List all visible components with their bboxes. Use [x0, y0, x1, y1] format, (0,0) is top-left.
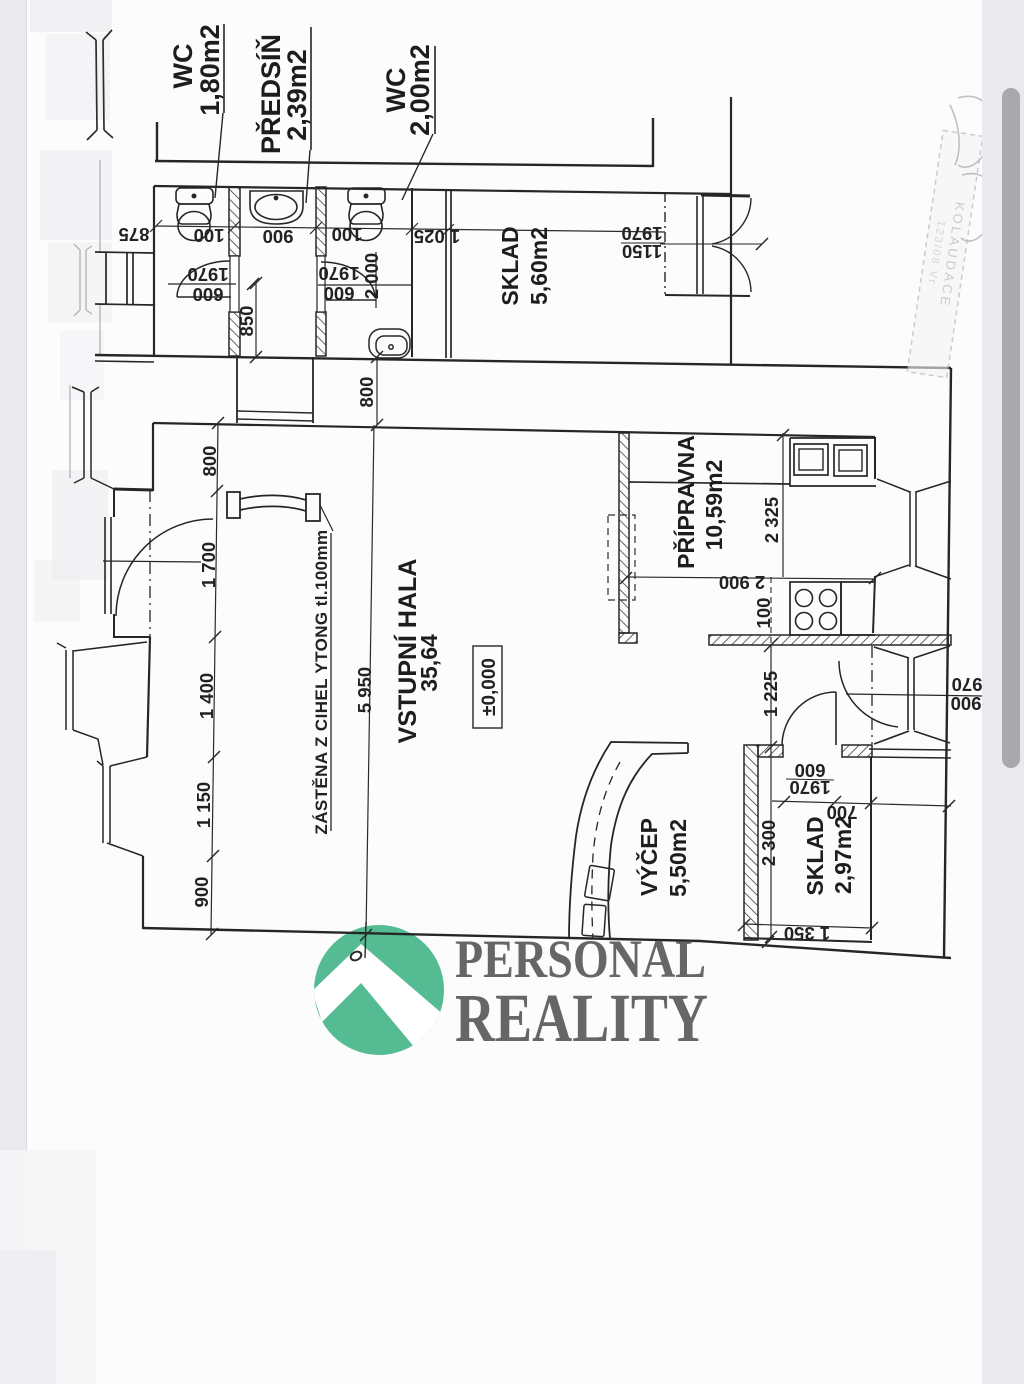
svg-text:800: 800 [199, 446, 220, 477]
svg-text:1970: 1970 [187, 264, 228, 285]
svg-text:ZÁSTĚNA Z CIHEL YTONG tl.100mm: ZÁSTĚNA Z CIHEL YTONG tl.100mm [312, 529, 331, 834]
svg-text:2 900: 2 900 [719, 572, 765, 593]
svg-text:2 000: 2 000 [361, 253, 382, 299]
svg-text:100: 100 [332, 224, 363, 245]
svg-text:2,39m2: 2,39m2 [282, 49, 312, 141]
svg-text:600: 600 [324, 283, 355, 304]
svg-text:875: 875 [119, 224, 150, 245]
svg-text:100: 100 [194, 225, 225, 246]
svg-text:1150: 1150 [622, 241, 662, 262]
svg-text:800: 800 [356, 377, 377, 408]
svg-text:900: 900 [263, 226, 294, 247]
svg-text:1970: 1970 [621, 223, 662, 244]
svg-text:900: 900 [951, 693, 982, 714]
svg-text:5,50m2: 5,50m2 [665, 819, 691, 897]
svg-text:1 025: 1 025 [414, 226, 460, 247]
svg-text:SKLAD: SKLAD [497, 226, 523, 305]
svg-text:REALITY: REALITY [455, 980, 708, 1056]
svg-text:±0,000: ±0,000 [479, 658, 500, 716]
svg-text:900: 900 [191, 877, 212, 908]
svg-text:600: 600 [193, 284, 224, 305]
svg-text:2,97m2: 2,97m2 [830, 816, 856, 894]
svg-text:5 950: 5 950 [354, 667, 375, 713]
svg-text:1 225: 1 225 [760, 671, 781, 717]
svg-text:2,00m2: 2,00m2 [405, 44, 435, 136]
svg-text:2 325: 2 325 [761, 497, 782, 543]
svg-text:PŘÍPRAVNA: PŘÍPRAVNA [672, 435, 699, 569]
svg-text:1 400: 1 400 [196, 673, 217, 719]
svg-text:WC: WC [168, 44, 198, 89]
svg-text:100: 100 [753, 598, 774, 629]
svg-text:1 150: 1 150 [193, 782, 214, 828]
svg-text:1970: 1970 [318, 263, 359, 284]
svg-text:10,59m2: 10,59m2 [701, 460, 727, 551]
svg-text:SKLAD: SKLAD [802, 816, 828, 895]
svg-text:970: 970 [952, 674, 983, 695]
svg-text:35,64: 35,64 [416, 634, 442, 692]
svg-text:VÝČEP: VÝČEP [635, 818, 662, 896]
svg-text:1 700: 1 700 [198, 542, 219, 588]
svg-text:850: 850 [236, 306, 257, 337]
svg-text:1,80m2: 1,80m2 [195, 24, 225, 116]
svg-text:2 300: 2 300 [758, 820, 779, 866]
svg-text:5,60m2: 5,60m2 [526, 227, 552, 305]
